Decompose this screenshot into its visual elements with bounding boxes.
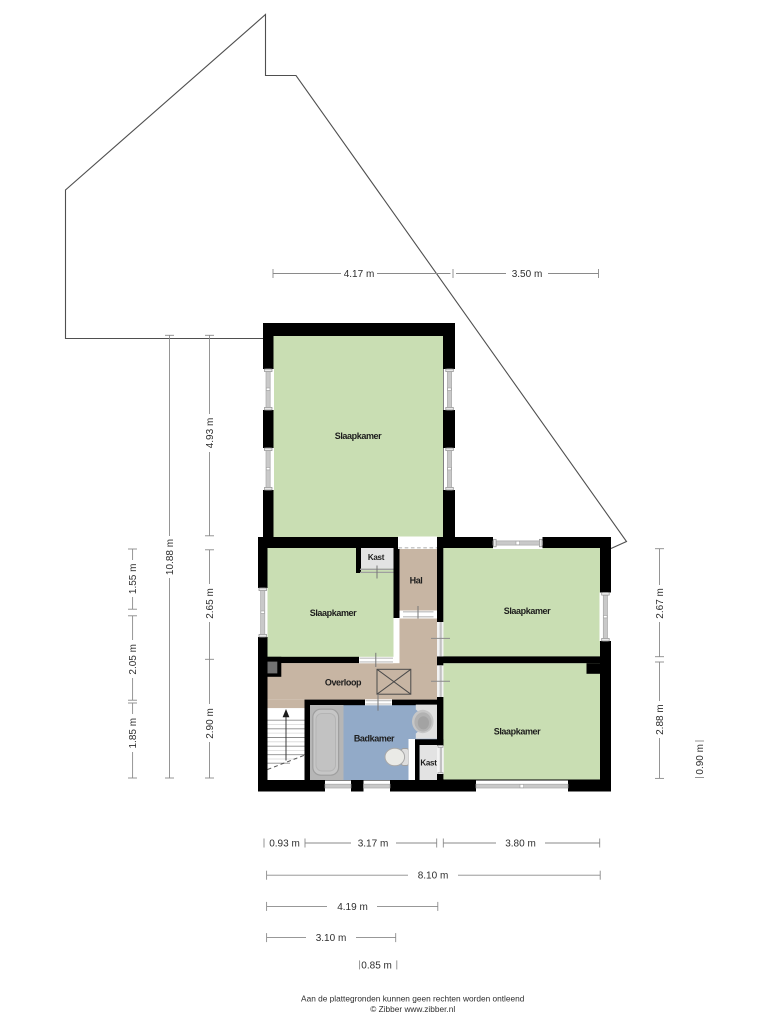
svg-text:Slaapkamer: Slaapkamer: [494, 727, 541, 737]
svg-text:2.67 m: 2.67 m: [655, 588, 666, 619]
svg-text:4.19 m: 4.19 m: [337, 902, 368, 913]
svg-text:Slaapkamer: Slaapkamer: [504, 606, 551, 616]
svg-text:2.05 m: 2.05 m: [128, 644, 139, 675]
svg-text:© Zibber www.zibber.nl: © Zibber www.zibber.nl: [370, 1004, 455, 1014]
svg-text:1.55 m: 1.55 m: [128, 564, 139, 595]
svg-text:4.17 m: 4.17 m: [344, 269, 375, 280]
svg-text:Hal: Hal: [410, 576, 423, 586]
svg-text:3.10 m: 3.10 m: [316, 933, 347, 944]
svg-text:0.90 m: 0.90 m: [695, 744, 706, 775]
svg-text:2.88 m: 2.88 m: [655, 704, 666, 735]
svg-text:8.10 m: 8.10 m: [418, 871, 449, 882]
svg-text:Badkamer: Badkamer: [354, 734, 395, 744]
svg-text:4.93 m: 4.93 m: [205, 418, 216, 449]
svg-text:Slaapkamer: Slaapkamer: [335, 431, 382, 441]
svg-text:3.17 m: 3.17 m: [358, 839, 389, 850]
svg-text:Aan de plattegronden kunnen ge: Aan de plattegronden kunnen geen rechten…: [301, 994, 525, 1004]
svg-text:Slaapkamer: Slaapkamer: [310, 608, 357, 618]
svg-text:3.80 m: 3.80 m: [505, 839, 536, 850]
svg-text:0.85 m: 0.85 m: [361, 960, 392, 971]
svg-text:Kast: Kast: [368, 553, 385, 562]
svg-text:1.85 m: 1.85 m: [128, 718, 139, 749]
svg-text:0.93 m: 0.93 m: [269, 839, 300, 850]
svg-text:10.88 m: 10.88 m: [165, 539, 176, 575]
svg-text:Overloop: Overloop: [325, 678, 362, 688]
svg-text:3.50 m: 3.50 m: [512, 269, 543, 280]
svg-text:2.65 m: 2.65 m: [205, 588, 216, 619]
svg-text:Kast: Kast: [420, 759, 437, 768]
svg-text:2.90 m: 2.90 m: [205, 708, 216, 739]
